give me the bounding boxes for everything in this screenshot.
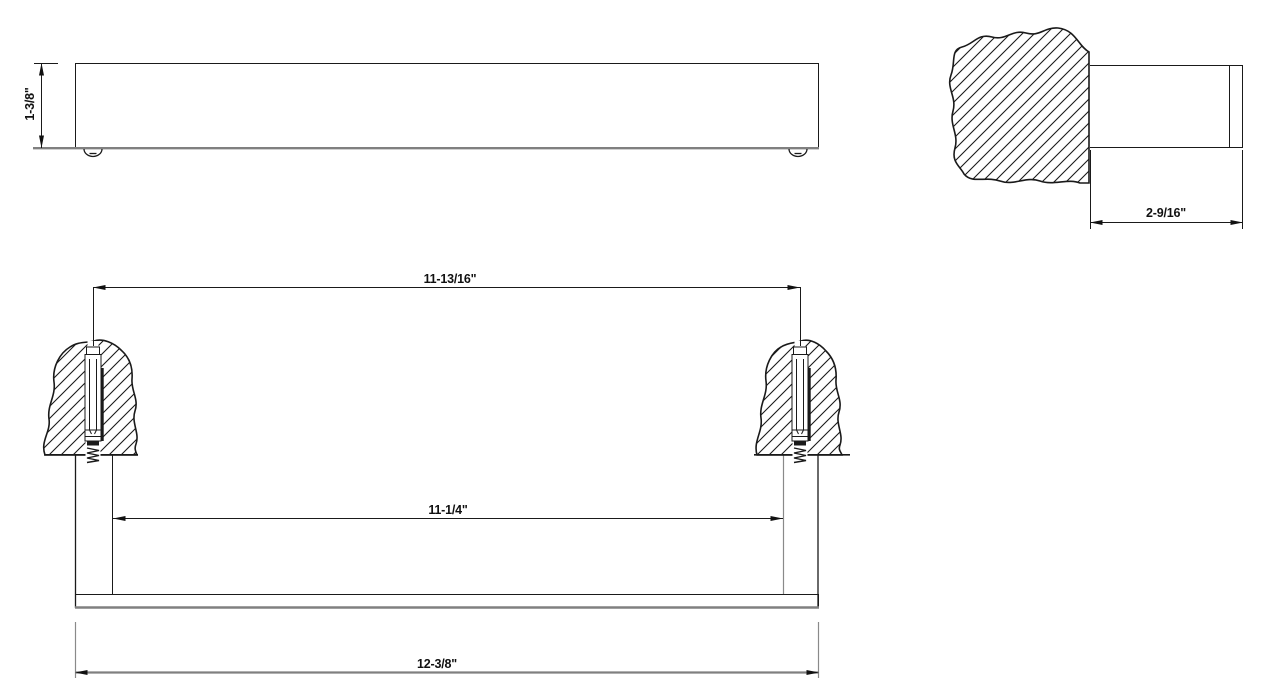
wall-section-side bbox=[950, 28, 1089, 183]
dim-label-hole-centers: 11-13/16" bbox=[424, 272, 477, 286]
dim-wall-projection: 2-9/16" bbox=[1090, 150, 1243, 229]
front-view: 1-3/8" bbox=[23, 63, 819, 157]
post-arc-left bbox=[84, 149, 102, 157]
technical-drawing: 1-3/8" 2-9/16" bbox=[0, 0, 1271, 693]
bar-bottom-outline bbox=[75, 594, 819, 608]
dim-label-wall-projection: 2-9/16" bbox=[1146, 206, 1186, 220]
side-view: 2-9/16" bbox=[950, 28, 1243, 229]
post-right bbox=[784, 455, 819, 608]
dim-label-bar-height: 1-3/8" bbox=[23, 87, 37, 120]
dim-bar-height: 1-3/8" bbox=[23, 63, 58, 148]
dim-label-inner-span: 11-1/4" bbox=[428, 503, 468, 517]
wall-anchor-right bbox=[792, 341, 809, 463]
bar-side-outline bbox=[1090, 65, 1243, 148]
dim-overall-length: 12-3/8" bbox=[75, 622, 819, 678]
dim-label-overall-length: 12-3/8" bbox=[417, 657, 457, 671]
dim-inner-span: 11-1/4" bbox=[113, 503, 783, 521]
wall-anchor-left bbox=[85, 341, 102, 463]
post-arc-right bbox=[789, 149, 807, 157]
installation-view: 11-13/16" 11-1/4" 12-3/8" bbox=[44, 272, 850, 678]
post-left bbox=[76, 455, 113, 608]
dim-hole-centers: 11-13/16" bbox=[93, 272, 801, 346]
bar-front-outline bbox=[33, 63, 819, 148]
